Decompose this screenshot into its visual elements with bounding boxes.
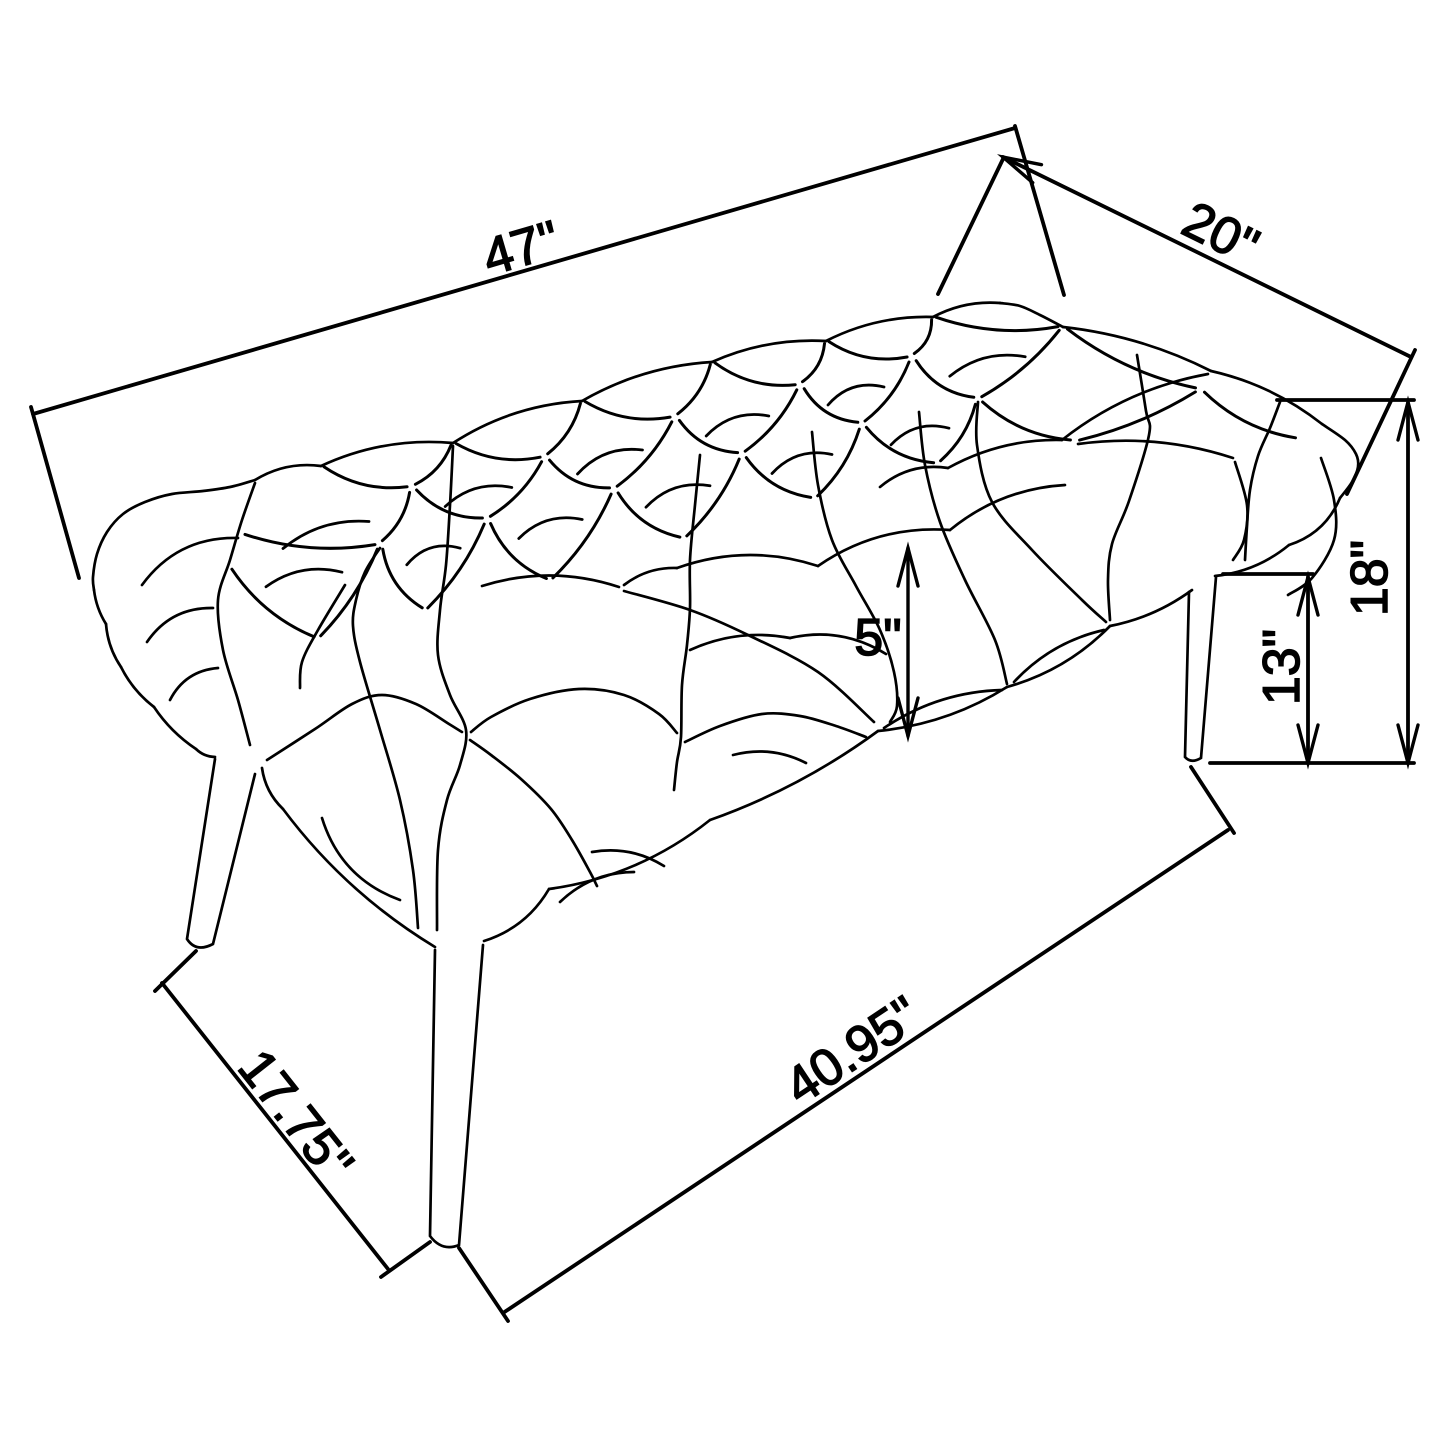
- svg-text:5": 5": [854, 609, 901, 667]
- svg-text:18": 18": [1341, 540, 1399, 616]
- svg-text:13": 13": [1253, 629, 1311, 705]
